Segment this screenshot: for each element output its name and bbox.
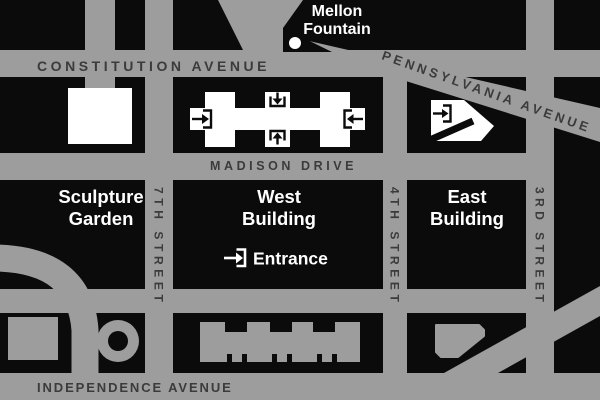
notched-building-tick	[272, 354, 277, 362]
ring-building-hole	[108, 331, 128, 351]
label-mellon-fountain-line1: Mellon	[312, 3, 363, 20]
notched-building-tick	[317, 354, 322, 362]
label-west-building-line1: West	[257, 186, 301, 207]
label-madison-drive: MADISON DRIVE	[210, 159, 356, 173]
label-sculpture-garden-line2: Garden	[69, 208, 134, 229]
label-constitution-avenue: CONSTITUTION AVENUE	[37, 58, 269, 74]
map-canvas: CONSTITUTION AVENUE MADISON DRIVE INDEPE…	[0, 0, 600, 400]
notched-building-tick	[242, 354, 247, 362]
notched-building-notch	[270, 322, 292, 332]
mellon-fountain-dot	[289, 37, 301, 49]
label-sculpture-garden-line1: Sculpture	[58, 186, 143, 207]
label-east-building-line2: Building	[430, 208, 504, 229]
label-4th-street: 4TH STREET	[388, 187, 402, 304]
notched-building-tick	[287, 354, 292, 362]
notched-building-tick	[227, 354, 232, 362]
label-entrance: Entrance	[253, 249, 328, 269]
label-3rd-street: 3RD STREET	[533, 187, 547, 304]
west-building-west-pavilion	[205, 92, 235, 147]
label-independence-avenue: INDEPENDENCE AVENUE	[37, 380, 233, 395]
notched-building-notch	[225, 322, 247, 332]
label-west-building-line2: Building	[242, 208, 316, 229]
label-east-building-line1: East	[447, 186, 486, 207]
label-7th-street: 7TH STREET	[152, 187, 166, 304]
notched-building-tick	[332, 354, 337, 362]
label-mellon-fountain-line2: Fountain	[303, 21, 371, 38]
white-square-building	[68, 88, 132, 144]
nga-area-map: CONSTITUTION AVENUE MADISON DRIVE INDEPE…	[0, 0, 600, 400]
footprint-rect-building	[8, 317, 58, 360]
notched-building-notch	[313, 322, 335, 332]
